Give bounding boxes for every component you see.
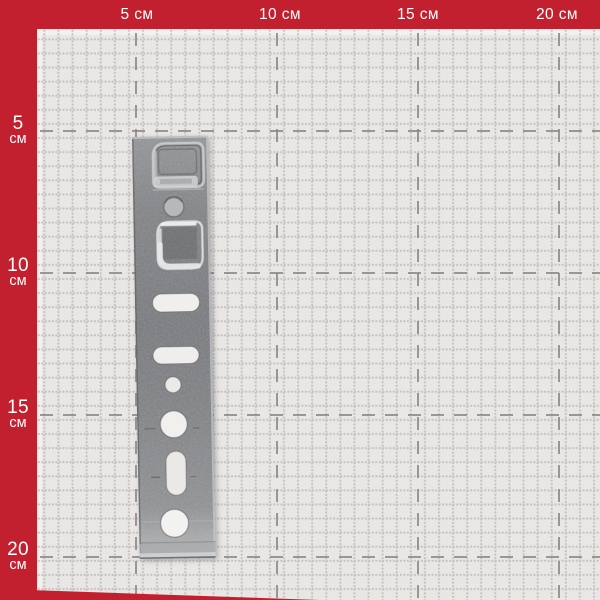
- gridline-horizontal-20cm: [40, 556, 600, 558]
- ruler-label-left-20cm: 20 см: [0, 542, 36, 572]
- ruler-label-top-15cm: 15 см: [397, 0, 439, 29]
- ruler-label-left-5cm: 5 см: [0, 116, 36, 146]
- ruler-label-top-5cm: 5 см: [121, 0, 154, 29]
- gridline-vertical-15cm: [417, 33, 419, 600]
- gridline-horizontal-5cm: [40, 130, 600, 132]
- gridline-horizontal-10cm: [40, 272, 600, 274]
- ruler-label-top-10cm: 10 см: [259, 0, 301, 29]
- anchor-plate-image: [132, 135, 216, 558]
- slot-horizontal-1: [152, 293, 199, 312]
- gridline-vertical-10cm: [276, 33, 278, 600]
- measurement-grid: [37, 29, 600, 600]
- gridline-vertical-20cm: [558, 33, 560, 600]
- ruler-label-left-15cm: 15 см: [0, 400, 36, 430]
- gridline-horizontal-15cm: [40, 414, 600, 416]
- product-photo-measurement-board: 5 см 10 см 15 см 20 см 5 см 10 см 15 см …: [0, 0, 600, 600]
- ruler-label-top-20cm: 20 см: [536, 0, 578, 29]
- ruler-frame-left: [0, 0, 37, 600]
- ruler-label-left-10cm: 10 см: [0, 258, 36, 288]
- slot-horizontal-2: [152, 346, 198, 364]
